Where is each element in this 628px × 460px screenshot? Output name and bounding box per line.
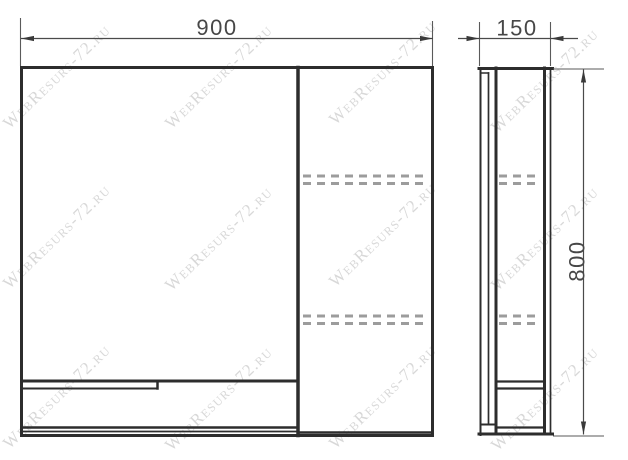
arrowhead-up-icon	[581, 70, 586, 83]
technical-drawing-svg: 900 150 800	[0, 0, 628, 460]
dimension-width-value: 900	[196, 15, 237, 40]
arrowhead-right-icon	[551, 36, 564, 41]
dimension-width-900: 900	[21, 15, 434, 66]
dimension-depth-150: 150	[458, 16, 578, 67]
side-view	[479, 68, 553, 435]
drawing-canvas: WebResurs-72.ru WebResurs-72.ru WebResur…	[0, 0, 628, 460]
front-view	[22, 68, 433, 436]
dimension-height-value: 800	[565, 240, 590, 281]
arrowhead-left-icon	[21, 36, 34, 41]
arrowhead-left-icon	[467, 36, 480, 41]
arrowhead-right-icon	[420, 36, 433, 41]
arrowhead-down-icon	[581, 422, 586, 435]
dimension-depth-value: 150	[496, 16, 537, 41]
dimension-height-800: 800	[553, 69, 604, 436]
